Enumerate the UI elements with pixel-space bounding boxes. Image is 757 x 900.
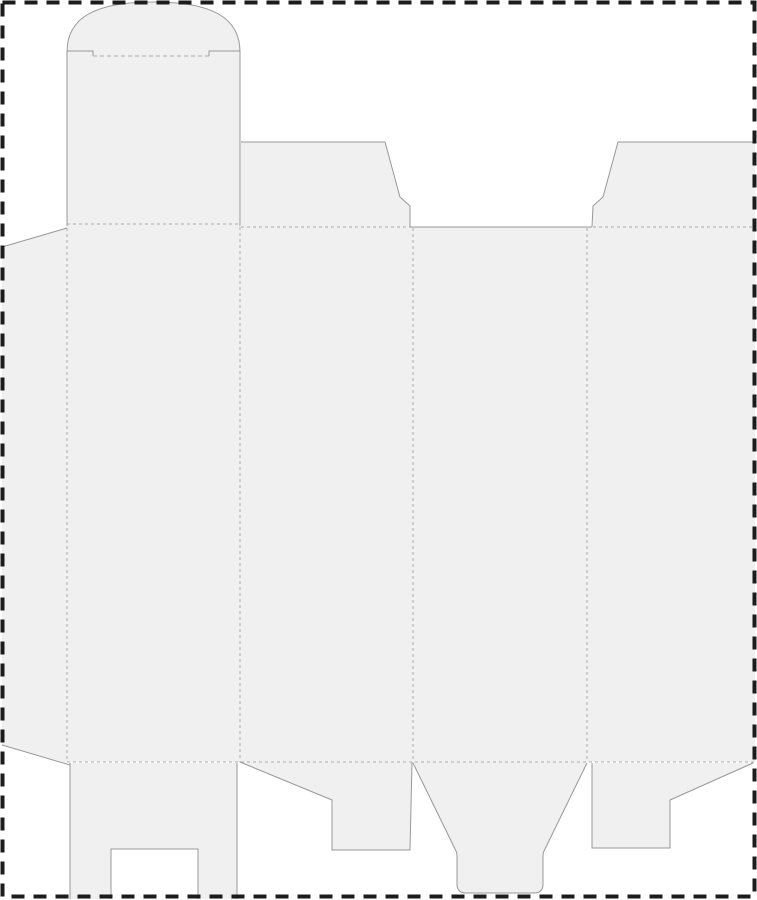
main-panels-panel: [67, 224, 755, 762]
bottom-flap-panel1-panel: [70, 763, 237, 899]
tuck-flap-dome-panel: [67, 2, 240, 52]
bottom-flap-panel2-panel: [240, 762, 412, 850]
dust-flap-left-panel: [241, 142, 410, 228]
top-lid-flap-panel: [67, 51, 240, 225]
bottom-tuck-panel3-panel: [413, 762, 587, 893]
glue-flap-panel: [2, 228, 67, 763]
flap1-notch-cut-cut: [111, 849, 198, 899]
dieline-canvas: [0, 0, 757, 900]
dust-flap-right-panel: [593, 142, 755, 228]
bottom-flap-panel4-panel: [592, 763, 755, 848]
dieline-svg: [0, 0, 757, 900]
